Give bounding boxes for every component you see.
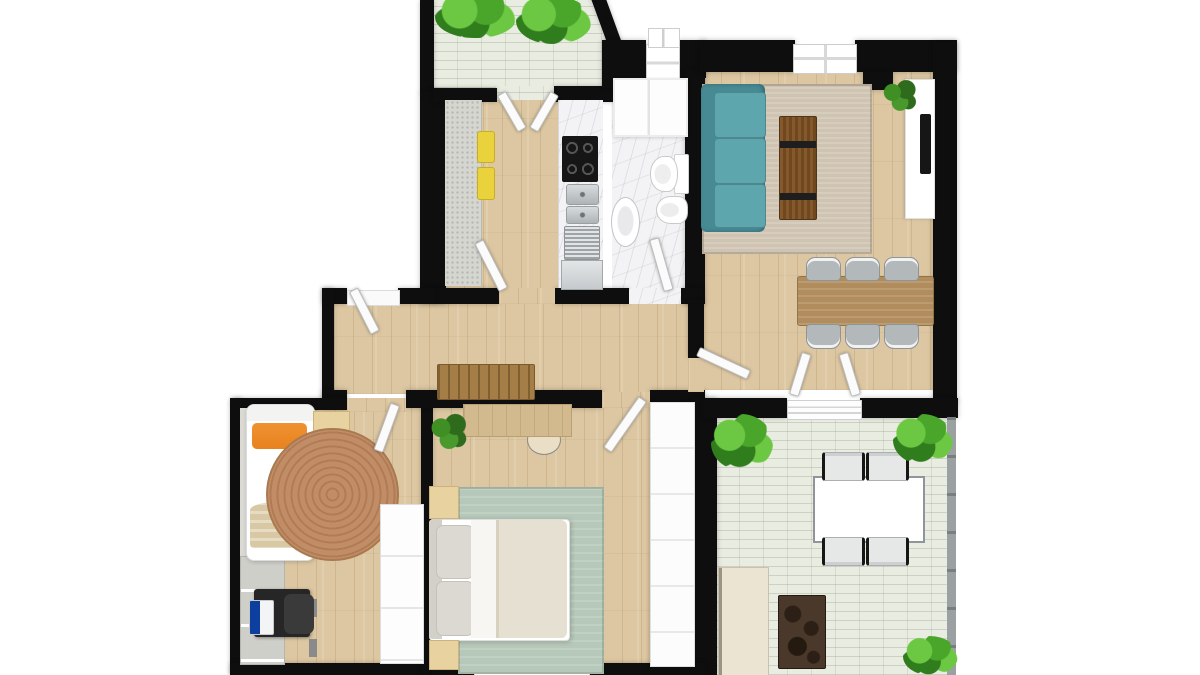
dining-chair [806, 257, 841, 281]
wall-living-right [933, 42, 957, 404]
kitchen-stool [477, 167, 495, 200]
kids-desk-chair [284, 594, 314, 634]
bathroom-sink [611, 197, 640, 247]
wall-living-top-left [700, 40, 795, 72]
wall-kitchen-bottom-left [433, 288, 499, 304]
shower [613, 78, 688, 137]
floor-plan [0, 0, 1200, 675]
sofa-cushion [714, 92, 766, 138]
terrace-door-threshold [787, 400, 862, 420]
wall-hall-top-mid [398, 288, 435, 304]
master-wardrobe [650, 402, 695, 667]
kids-wardrobe [380, 504, 424, 664]
master-duvet [496, 520, 567, 638]
cooktop [562, 136, 598, 182]
wall-kitchen-left [420, 92, 446, 304]
hall-bench [437, 364, 535, 400]
nightstand [429, 486, 459, 519]
bidet [656, 196, 688, 224]
wall-hall-left [322, 288, 334, 406]
kitchen-stool [477, 131, 495, 163]
terrace-cabinet [718, 567, 769, 675]
bathroom-hall-threshold [629, 288, 681, 304]
terrace-bush-icon [711, 414, 773, 470]
dining-chair [806, 324, 841, 349]
sofa-cushion [714, 184, 766, 228]
terrace-chair [866, 537, 909, 566]
wall-balcony-left [420, 0, 434, 94]
terrace-table [813, 476, 925, 543]
wall-kitchen-bathroom-bottom [555, 288, 629, 304]
dining-chair [845, 324, 880, 349]
terrace-chair [822, 452, 865, 481]
toilet [650, 156, 678, 192]
dining-chair [845, 257, 880, 281]
tv [920, 114, 931, 174]
master-pillow [436, 525, 474, 579]
living-room-window [793, 44, 857, 74]
steel-appliance [564, 226, 600, 260]
coffee-table [779, 116, 817, 220]
balcony-plant-icon [516, 0, 592, 44]
dishwasher-front [561, 260, 603, 290]
kitchen-sink [566, 184, 599, 205]
dining-chair [884, 324, 919, 349]
terrace-marble-table [778, 595, 826, 669]
terrace-bush-icon [903, 636, 958, 675]
terrace-bush-icon [893, 414, 953, 464]
bathroom-window-sash [648, 28, 680, 48]
dining-chair [884, 257, 919, 281]
master-desk [463, 404, 572, 437]
master-pillow [436, 581, 474, 636]
kitchen-sink [566, 206, 599, 224]
dining-table [797, 276, 934, 326]
bathroom-window [646, 44, 680, 80]
nightstand [429, 640, 459, 670]
terrace-railing [947, 417, 956, 675]
hall-living-opening [688, 358, 704, 392]
laptop [249, 600, 274, 635]
terrace-chair [822, 537, 865, 566]
master-sheet [471, 520, 497, 638]
sofa-cushion [714, 138, 766, 184]
kitchen-hall-threshold [499, 288, 555, 304]
